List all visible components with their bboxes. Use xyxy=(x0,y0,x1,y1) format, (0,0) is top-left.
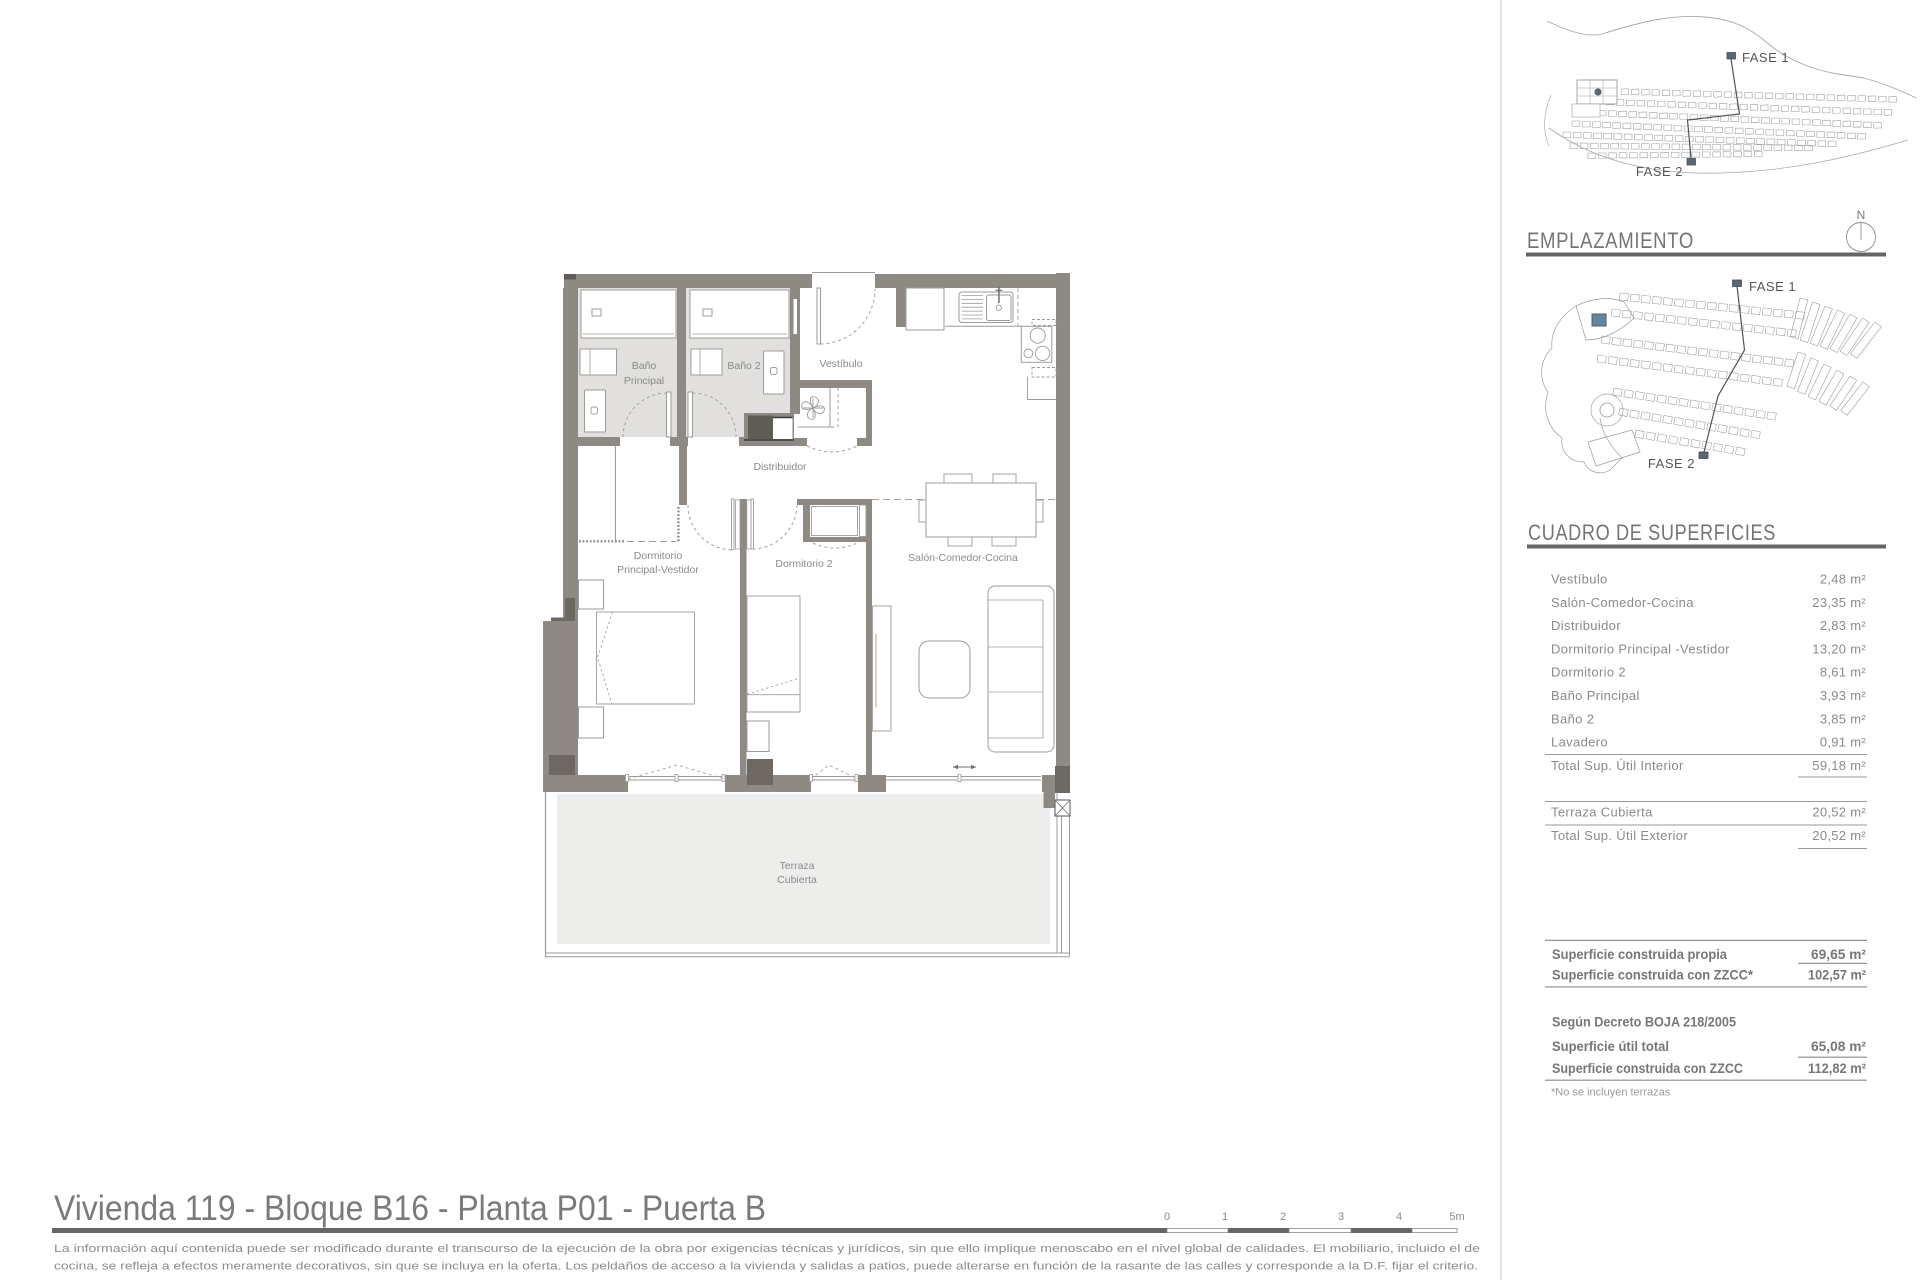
svg-text:Según Decreto BOJA 218/2005: Según Decreto BOJA 218/2005 xyxy=(1552,1013,1736,1029)
svg-text:59,18 m²: 59,18 m² xyxy=(1812,758,1866,773)
svg-text:FASE 1: FASE 1 xyxy=(1742,50,1789,65)
svg-text:3,93 m²: 3,93 m² xyxy=(1820,688,1867,703)
svg-text:Baño Principal: Baño Principal xyxy=(1551,688,1640,703)
svg-text:23,35 m²: 23,35 m² xyxy=(1812,595,1866,610)
svg-text:Vivienda 119 - Bloque B16 - Pl: Vivienda 119 - Bloque B16 - Planta P01 -… xyxy=(54,1189,766,1228)
svg-text:Terraza Cubierta: Terraza Cubierta xyxy=(1551,805,1653,820)
svg-text:Total Sup. Útil Exterior: Total Sup. Útil Exterior xyxy=(1551,828,1688,843)
svg-text:4: 4 xyxy=(1396,1211,1402,1223)
svg-text:69,65 m²: 69,65 m² xyxy=(1811,947,1866,962)
svg-text:3,85 m²: 3,85 m² xyxy=(1820,711,1867,726)
svg-text:Distribuidor: Distribuidor xyxy=(1551,618,1621,633)
svg-text:2,83 m²: 2,83 m² xyxy=(1820,618,1867,633)
svg-text:Cubierta: Cubierta xyxy=(777,874,817,886)
svg-text:FASE 2: FASE 2 xyxy=(1648,456,1695,471)
svg-text:1: 1 xyxy=(1222,1211,1228,1223)
svg-text:Salón-Comedor-Cocina: Salón-Comedor-Cocina xyxy=(908,552,1018,564)
svg-text:Salón-Comedor-Cocina: Salón-Comedor-Cocina xyxy=(1551,595,1694,610)
svg-text:2: 2 xyxy=(1280,1211,1286,1223)
svg-text:Dormitorio Principal -Vestidor: Dormitorio Principal -Vestidor xyxy=(1551,641,1730,656)
svg-text:Dormitorio 2: Dormitorio 2 xyxy=(775,558,832,570)
svg-text:Total Sup. Útil Interior: Total Sup. Útil Interior xyxy=(1551,758,1684,773)
svg-text:Superficie construida con ZZCC: Superficie construida con ZZCC* xyxy=(1552,966,1754,982)
svg-text:65,08 m²: 65,08 m² xyxy=(1811,1039,1866,1054)
svg-text:Lavadero: Lavadero xyxy=(1551,735,1608,750)
svg-text:Dormitorio 2: Dormitorio 2 xyxy=(1551,665,1626,680)
svg-text:CUADRO DE SUPERFICIES: CUADRO DE SUPERFICIES xyxy=(1528,520,1776,545)
svg-text:13,20 m²: 13,20 m² xyxy=(1812,641,1866,656)
svg-text:2,48 m²: 2,48 m² xyxy=(1820,572,1867,587)
svg-text:EMPLAZAMIENTO: EMPLAZAMIENTO xyxy=(1527,228,1694,253)
svg-text:Baño 2: Baño 2 xyxy=(1551,711,1594,726)
svg-text:FASE 1: FASE 1 xyxy=(1749,279,1796,294)
svg-text:La información aquí contenida: La información aquí contenida puede ser … xyxy=(54,1243,1480,1255)
svg-text:3: 3 xyxy=(1338,1211,1344,1223)
svg-text:5m: 5m xyxy=(1449,1211,1464,1223)
svg-text:Superficie construida propia: Superficie construida propia xyxy=(1552,946,1727,962)
svg-text:102,57 m²: 102,57 m² xyxy=(1808,967,1866,982)
svg-text:Distribuidor: Distribuidor xyxy=(753,461,807,473)
svg-text:N: N xyxy=(1857,208,1866,222)
svg-text:Baño: Baño xyxy=(632,360,657,372)
svg-text:Principal-Vestidor: Principal-Vestidor xyxy=(617,564,699,576)
svg-text:112,82 m²: 112,82 m² xyxy=(1808,1061,1866,1076)
svg-text:*No se incluyen terrazas: *No se incluyen terrazas xyxy=(1551,1087,1671,1099)
svg-text:Vestíbulo: Vestíbulo xyxy=(1551,572,1608,587)
svg-text:FASE 2: FASE 2 xyxy=(1636,164,1683,179)
svg-text:Baño 2: Baño 2 xyxy=(727,360,760,372)
svg-text:20,52 m²: 20,52 m² xyxy=(1812,828,1866,843)
svg-text:20,52 m²: 20,52 m² xyxy=(1812,805,1866,820)
svg-text:cocina, se refleja a efectos m: cocina, se refleja a efectos meramente d… xyxy=(54,1261,1478,1273)
svg-text:Dormitorio: Dormitorio xyxy=(634,550,683,562)
svg-text:Principal: Principal xyxy=(624,375,664,387)
svg-text:Superficie útil total: Superficie útil total xyxy=(1552,1038,1669,1054)
svg-text:0: 0 xyxy=(1164,1211,1170,1223)
svg-text:Vestíbulo: Vestíbulo xyxy=(819,358,862,370)
svg-text:8,61 m²: 8,61 m² xyxy=(1820,665,1867,680)
svg-text:0,91 m²: 0,91 m² xyxy=(1820,735,1867,750)
svg-text:Terraza: Terraza xyxy=(779,860,814,872)
svg-text:Superficie construida con ZZCC: Superficie construida con ZZCC xyxy=(1552,1060,1743,1076)
